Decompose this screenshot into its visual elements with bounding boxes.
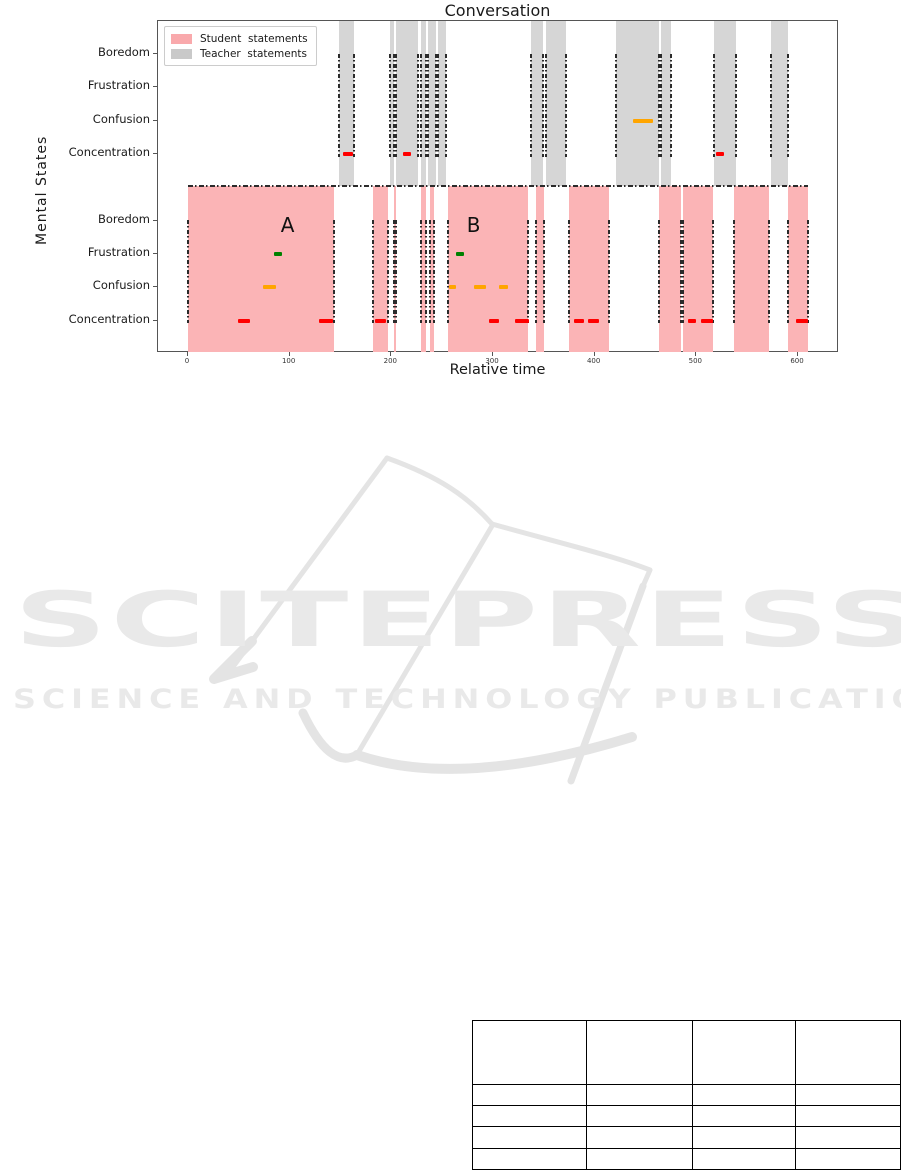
table-cell: [796, 1106, 901, 1127]
statement-boundary-line: [542, 54, 544, 157]
statement-boundary-line: [445, 54, 447, 157]
student-confusion-marker: [499, 285, 508, 289]
paper-page: Conversation Student statements Teacher …: [0, 0, 901, 1171]
x-tick-label: 300: [485, 357, 498, 365]
statement-boundary-line: [535, 220, 537, 323]
statement-boundary-line: [670, 54, 672, 157]
statement-boundary-line: [395, 54, 397, 157]
statement-boundary-line: [425, 220, 427, 323]
statement-boundary-line: [437, 54, 439, 157]
statement-boundary-line: [735, 54, 737, 157]
student-confusion-marker: [474, 285, 486, 289]
table-row: [473, 1021, 901, 1085]
x-tick-mark: [492, 352, 493, 356]
statement-boundary-line: [187, 220, 189, 323]
table-header-cell: [587, 1021, 693, 1085]
table-cell: [473, 1149, 587, 1170]
statement-boundary-line: [530, 54, 532, 157]
statement-boundary-line: [568, 220, 570, 323]
statement-boundary-line: [713, 54, 715, 157]
legend-item-student: Student statements: [171, 31, 308, 46]
statement-boundary-line: [433, 220, 435, 323]
statement-band-student: [659, 186, 681, 352]
x-tick-mark: [390, 352, 391, 356]
y-tick-label: Confusion: [0, 112, 150, 126]
statement-boundary-line: [387, 220, 389, 323]
table-row: [473, 1085, 901, 1106]
statement-boundary-line: [420, 54, 422, 157]
statement-band-teacher: [546, 21, 566, 186]
statement-band-teacher: [616, 21, 659, 186]
statement-boundary-line: [733, 220, 735, 323]
student-confusion-marker: [449, 285, 456, 289]
statement-boundary-line: [389, 54, 391, 157]
table-cell: [587, 1085, 693, 1106]
statement-band-student: [448, 186, 527, 352]
statement-boundary-line: [372, 220, 374, 323]
y-tick-mark: [153, 86, 157, 87]
statement-boundary-line: [682, 220, 684, 323]
statement-band-teacher: [396, 21, 417, 186]
statement-boundary-line: [787, 220, 789, 323]
x-tick-mark: [187, 352, 188, 356]
table-cell: [587, 1149, 693, 1170]
student-confusion-marker: [263, 285, 276, 289]
legend-label-student: Student statements: [200, 33, 308, 45]
y-tick-label: Concentration: [0, 145, 150, 159]
annotation-a: A: [281, 213, 295, 237]
statement-boundary-line: [333, 220, 335, 323]
table-cell: [587, 1127, 693, 1149]
statement-boundary-line: [565, 54, 567, 157]
x-tick-label: 600: [790, 357, 803, 365]
table-cell: [473, 1085, 587, 1106]
x-tick-mark: [289, 352, 290, 356]
statement-boundary-line: [543, 220, 545, 323]
y-axis-label: Mental States: [34, 120, 48, 260]
statement-band-student: [683, 186, 712, 352]
legend-item-teacher: Teacher statements: [171, 46, 308, 61]
table-cell: [473, 1127, 587, 1149]
table-cell: [692, 1149, 796, 1170]
student-concentration-marker: [701, 319, 712, 323]
statement-boundary-line: [429, 220, 431, 323]
statement-boundary-line: [527, 220, 529, 323]
x-tick-label: 100: [282, 357, 295, 365]
results-table: [472, 1020, 901, 1170]
table-cell: [692, 1106, 796, 1127]
annotation-b: B: [467, 213, 481, 237]
student-concentration-marker: [375, 319, 386, 323]
y-tick-label: Boredom: [0, 45, 150, 59]
group-divider-line: [188, 185, 808, 187]
y-tick-mark: [153, 53, 157, 54]
student-concentration-marker: [796, 319, 808, 323]
student-concentration-marker: [574, 319, 584, 323]
student-concentration-marker: [489, 319, 499, 323]
statement-boundary-line: [768, 220, 770, 323]
x-tick-mark: [695, 352, 696, 356]
table-header-cell: [692, 1021, 796, 1085]
y-tick-mark: [153, 120, 157, 121]
x-tick-label: 400: [587, 357, 600, 365]
student-frustration-marker: [274, 252, 281, 256]
statement-boundary-line: [712, 220, 714, 323]
statement-boundary-line: [658, 220, 660, 323]
student-concentration-marker: [688, 319, 696, 323]
teacher-concentration-marker: [716, 152, 724, 156]
table-header-cell: [473, 1021, 587, 1085]
table-cell: [692, 1085, 796, 1106]
statement-boundary-line: [545, 54, 547, 157]
statement-boundary-line: [420, 220, 422, 323]
table-cell: [796, 1085, 901, 1106]
conversation-chart: Student statements Teacher statements AB: [157, 20, 838, 352]
student-frustration-marker: [456, 252, 463, 256]
chart-legend: Student statements Teacher statements: [164, 26, 317, 66]
statement-boundary-line: [427, 54, 429, 157]
teacher-swatch: [171, 49, 192, 59]
table-cell: [692, 1127, 796, 1149]
statement-band-student: [569, 186, 609, 352]
y-tick-label: Boredom: [0, 212, 150, 226]
statement-boundary-line: [807, 220, 809, 323]
student-concentration-marker: [238, 319, 250, 323]
y-tick-label: Confusion: [0, 278, 150, 292]
statement-boundary-line: [608, 220, 610, 323]
watermark-title: SCITEPRESS: [14, 582, 901, 658]
statement-band-teacher: [714, 21, 736, 186]
y-tick-mark: [153, 220, 157, 221]
watermark-subtitle: SCIENCE AND TECHNOLOGY PUBLICATIONS: [13, 686, 901, 713]
teacher-concentration-marker: [343, 152, 353, 156]
statement-boundary-line: [447, 220, 449, 323]
student-concentration-marker: [319, 319, 333, 323]
statement-band-student: [188, 186, 334, 352]
y-tick-mark: [153, 253, 157, 254]
statement-band-student: [734, 186, 769, 352]
y-tick-mark: [153, 286, 157, 287]
statement-band-student: [373, 186, 388, 352]
y-tick-label: Concentration: [0, 312, 150, 326]
student-concentration-marker: [588, 319, 599, 323]
table-row: [473, 1149, 901, 1170]
table-cell: [473, 1106, 587, 1127]
table-row: [473, 1106, 901, 1127]
statement-boundary-line: [338, 54, 340, 157]
statement-boundary-line: [615, 54, 617, 157]
statement-band-teacher: [339, 21, 353, 186]
x-tick-label: 200: [384, 357, 397, 365]
table-cell: [796, 1127, 901, 1149]
table-row: [473, 1127, 901, 1149]
x-tick-mark: [797, 352, 798, 356]
statement-boundary-line: [395, 220, 397, 323]
y-tick-mark: [153, 153, 157, 154]
y-tick-label: Frustration: [0, 245, 150, 259]
teacher-confusion-marker: [633, 119, 652, 123]
student-concentration-marker: [515, 319, 528, 323]
y-tick-label: Frustration: [0, 78, 150, 92]
table-cell: [587, 1106, 693, 1127]
chart-title: Conversation: [157, 1, 838, 20]
statement-boundary-line: [417, 54, 419, 157]
statement-boundary-line: [660, 54, 662, 157]
table-cell: [796, 1149, 901, 1170]
legend-label-teacher: Teacher statements: [200, 48, 307, 60]
x-tick-label: 0: [185, 357, 189, 365]
x-tick-label: 500: [689, 357, 702, 365]
student-swatch: [171, 34, 192, 44]
statement-band-student: [788, 186, 808, 352]
table-header-cell: [796, 1021, 901, 1085]
x-tick-mark: [594, 352, 595, 356]
teacher-concentration-marker: [403, 152, 411, 156]
statement-band-teacher: [771, 21, 788, 186]
y-tick-mark: [153, 320, 157, 321]
statement-boundary-line: [787, 54, 789, 157]
statement-boundary-line: [353, 54, 355, 157]
statement-boundary-line: [770, 54, 772, 157]
